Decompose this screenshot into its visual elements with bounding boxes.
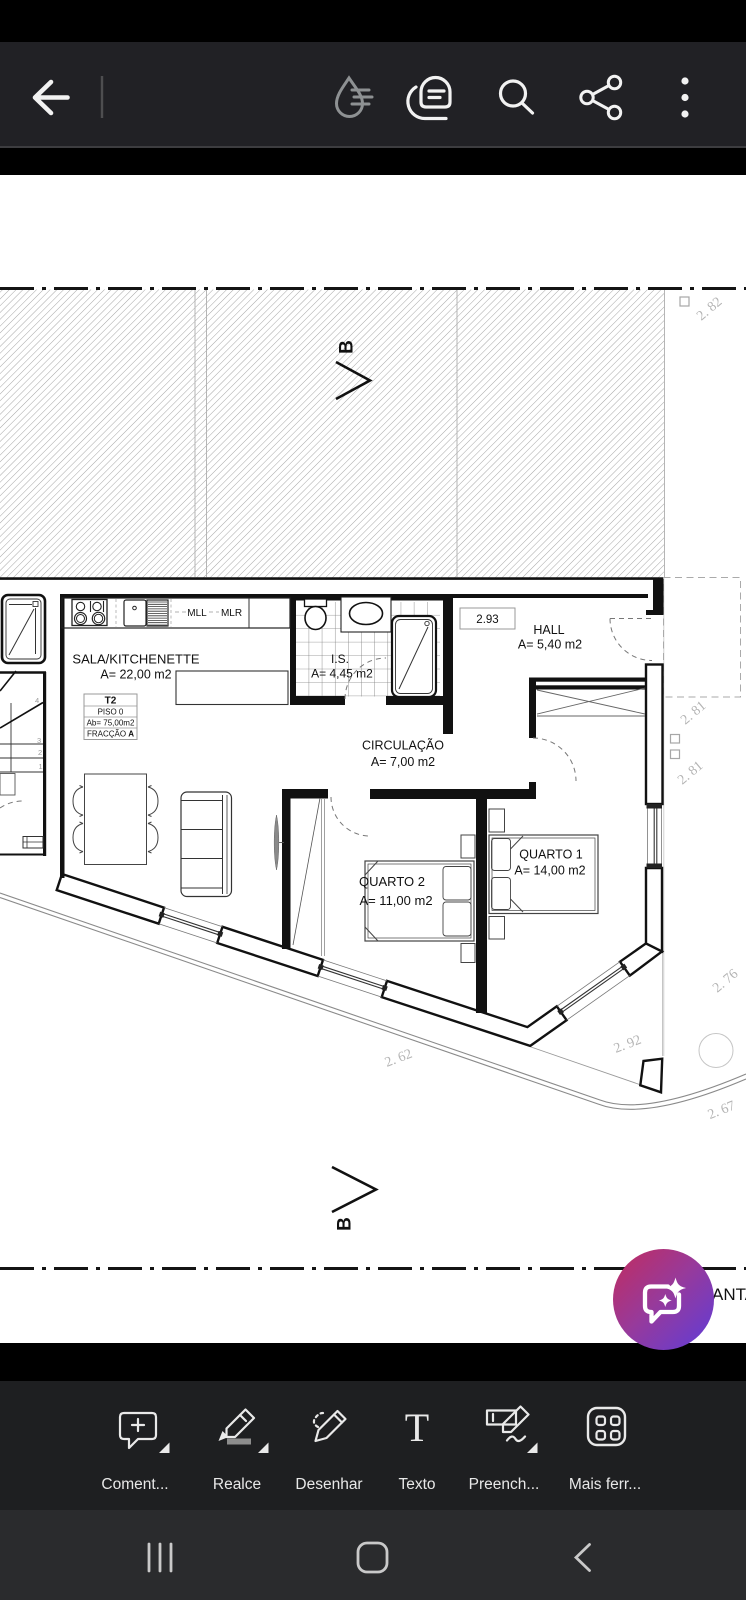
svg-text:1: 1 [39, 762, 43, 771]
svg-text:Realce: Realce [213, 1476, 261, 1493]
svg-text:PISO 0: PISO 0 [98, 708, 124, 717]
svg-text:Coment...: Coment... [101, 1476, 168, 1493]
svg-text:T: T [405, 1405, 429, 1450]
svg-text:ANTA: ANTA [712, 1285, 746, 1304]
svg-text:A= 7,00 m2: A= 7,00 m2 [371, 755, 435, 769]
svg-text:QUARTO 2: QUARTO 2 [359, 874, 425, 889]
svg-text:MLR: MLR [221, 608, 242, 619]
svg-text:2. 76: 2. 76 [710, 967, 741, 996]
svg-text:4: 4 [35, 696, 39, 705]
svg-text:HALL: HALL [533, 623, 564, 637]
svg-text:T2: T2 [105, 696, 117, 707]
svg-text:A= 11,00 m2: A= 11,00 m2 [359, 893, 432, 908]
svg-text:Mais ferr...: Mais ferr... [569, 1476, 641, 1493]
svg-text:Desenhar: Desenhar [295, 1476, 362, 1493]
svg-text:A= 5,40 m2: A= 5,40 m2 [518, 638, 582, 652]
svg-text:2. 82: 2. 82 [694, 295, 725, 324]
svg-text:MLL: MLL [187, 608, 207, 619]
svg-text:3: 3 [37, 736, 41, 745]
svg-text:2. 67: 2. 67 [706, 1099, 738, 1123]
svg-text:Ab= 75,00m2: Ab= 75,00m2 [87, 719, 135, 728]
svg-text:B: B [337, 340, 358, 354]
svg-text:FRACÇÃO A: FRACÇÃO A [87, 730, 134, 739]
svg-text:2. 81: 2. 81 [678, 699, 709, 728]
svg-text:A= 4,45 m2: A= 4,45 m2 [311, 667, 373, 681]
svg-text:2. 92: 2. 92 [612, 1033, 644, 1057]
svg-text:I.S.: I.S. [331, 652, 349, 666]
svg-text:B: B [335, 1217, 356, 1231]
svg-text:A= 14,00 m2: A= 14,00 m2 [514, 864, 585, 878]
svg-text:2. 62: 2. 62 [383, 1047, 415, 1071]
svg-text:2.93: 2.93 [476, 614, 498, 626]
svg-text:SALA/KITCHENETTE: SALA/KITCHENETTE [72, 652, 199, 667]
svg-text:QUARTO 1: QUARTO 1 [519, 848, 582, 862]
svg-text:2: 2 [38, 748, 42, 757]
svg-text:A= 22,00 m2: A= 22,00 m2 [100, 668, 171, 682]
svg-text:Texto: Texto [398, 1476, 435, 1493]
svg-text:Preench...: Preench... [469, 1476, 540, 1493]
svg-text:2. 81: 2. 81 [675, 759, 706, 788]
svg-text:CIRCULAÇÃO: CIRCULAÇÃO [362, 739, 444, 753]
